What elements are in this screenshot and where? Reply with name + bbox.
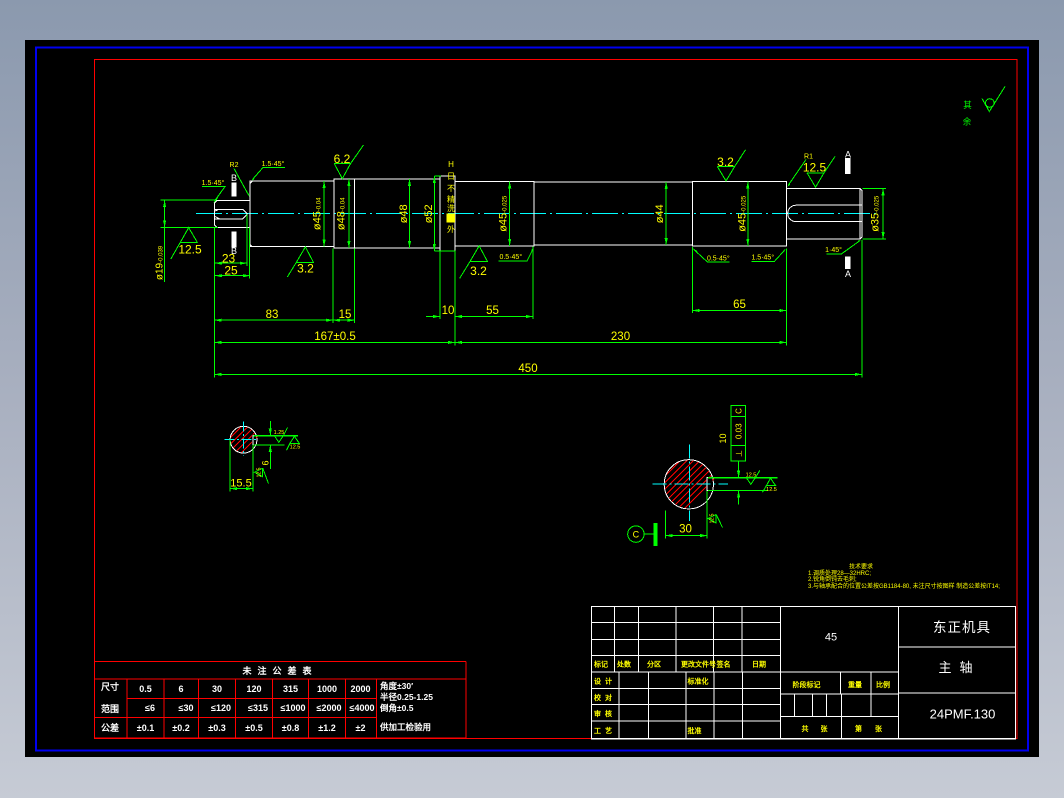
- svg-text:2000: 2000: [350, 684, 370, 694]
- svg-text:批准: 批准: [688, 726, 702, 735]
- svg-text:230: 230: [611, 331, 630, 343]
- svg-text:其: 其: [963, 100, 972, 110]
- svg-text:3.与轴承配合的位置公差按GB1184-80, 未注尺寸按图: 3.与轴承配合的位置公差按GB1184-80, 未注尺寸按图样 制造公差按IT1…: [808, 582, 1000, 590]
- svg-text:A: A: [845, 269, 851, 279]
- svg-text:半径0.25-1.25: 半径0.25-1.25: [380, 692, 433, 702]
- svg-text:≤4000: ≤4000: [350, 703, 375, 713]
- svg-text:0.03: 0.03: [734, 423, 743, 439]
- svg-text:标记: 标记: [593, 660, 608, 669]
- svg-text:2.锐角倒钝去毛刺;: 2.锐角倒钝去毛刺;: [808, 575, 857, 583]
- svg-text:供加工检验用: 供加工检验用: [379, 722, 431, 732]
- svg-text:3.2: 3.2: [470, 264, 487, 278]
- svg-text:65: 65: [733, 299, 746, 311]
- svg-text:1·45°: 1·45°: [825, 246, 842, 254]
- svg-text:≤2000: ≤2000: [317, 703, 342, 713]
- svg-text:1.5·45°: 1.5·45°: [202, 179, 225, 187]
- svg-text:外: 外: [447, 224, 455, 234]
- svg-text:C: C: [633, 530, 640, 540]
- svg-text:处数: 处数: [616, 660, 632, 669]
- svg-text:重量: 重量: [848, 680, 862, 689]
- svg-text:⊥: ⊥: [734, 450, 743, 457]
- svg-text:主轴: 主轴: [938, 660, 980, 675]
- svg-text:120: 120: [246, 684, 261, 694]
- svg-text:12.5: 12.5: [290, 445, 301, 451]
- svg-text:±0.3: ±0.3: [208, 723, 225, 733]
- svg-text:ø48: ø48: [398, 204, 410, 223]
- svg-text:C: C: [734, 408, 743, 414]
- svg-text:东正机具: 东正机具: [933, 620, 991, 635]
- svg-text:技术要求: 技术要求: [849, 563, 873, 571]
- svg-text:6: 6: [261, 460, 271, 465]
- svg-text:24PMF.130: 24PMF.130: [930, 707, 996, 722]
- svg-text:±0.5: ±0.5: [245, 723, 262, 733]
- svg-text:83: 83: [266, 309, 279, 321]
- svg-text:阶段标记: 阶段标记: [793, 680, 821, 689]
- svg-text:工艺: 工艺: [594, 726, 616, 735]
- svg-text:315: 315: [283, 684, 298, 694]
- svg-text:余: 余: [963, 117, 972, 127]
- svg-text:B: B: [231, 173, 237, 183]
- svg-text:未注公差表: 未注公差表: [241, 665, 317, 676]
- svg-text:0.5·45°: 0.5·45°: [499, 253, 522, 261]
- svg-text:3.2: 3.2: [297, 262, 314, 276]
- svg-text:H: H: [448, 160, 454, 169]
- svg-text:张: 张: [875, 724, 883, 733]
- svg-text:±1.2: ±1.2: [318, 723, 335, 733]
- svg-text:15: 15: [339, 309, 352, 321]
- svg-text:45: 45: [825, 632, 837, 644]
- svg-text:30: 30: [212, 684, 222, 694]
- svg-text:12.5: 12.5: [257, 467, 263, 477]
- svg-text:≤120: ≤120: [211, 703, 231, 713]
- svg-text:6: 6: [178, 684, 183, 694]
- svg-text:167±0.5: 167±0.5: [314, 331, 356, 343]
- svg-text:±0.8: ±0.8: [282, 723, 299, 733]
- svg-text:1.5·45°: 1.5·45°: [262, 160, 285, 168]
- svg-text:≤6: ≤6: [145, 703, 155, 713]
- svg-text:≤30: ≤30: [179, 703, 194, 713]
- svg-text:±0.2: ±0.2: [172, 723, 189, 733]
- svg-text:6.2: 6.2: [334, 152, 351, 166]
- svg-text:不: 不: [447, 184, 455, 193]
- svg-text:洗: 洗: [447, 203, 455, 213]
- svg-text:比例: 比例: [876, 680, 890, 689]
- svg-text:R1: R1: [804, 154, 813, 161]
- svg-text:标准化: 标准化: [687, 677, 709, 686]
- svg-text:R2: R2: [230, 162, 239, 169]
- svg-text:10: 10: [442, 305, 455, 317]
- svg-text:3.2: 3.2: [717, 155, 734, 169]
- svg-text:1.25: 1.25: [274, 430, 285, 436]
- svg-text:12.5: 12.5: [178, 243, 202, 257]
- svg-text:ø52: ø52: [423, 204, 435, 223]
- svg-text:角度±30′: 角度±30′: [380, 681, 413, 691]
- svg-text:1000: 1000: [317, 684, 337, 694]
- svg-text:0.5: 0.5: [139, 684, 152, 694]
- svg-text:共: 共: [802, 724, 809, 733]
- svg-text:12.5: 12.5: [710, 513, 716, 523]
- svg-text:0.5·45°: 0.5·45°: [707, 254, 730, 262]
- svg-text:日期: 日期: [752, 660, 766, 669]
- svg-text:校对: 校对: [594, 693, 616, 702]
- svg-text:12.5: 12.5: [746, 472, 757, 478]
- svg-text:10: 10: [718, 433, 728, 443]
- svg-text:12.5: 12.5: [766, 487, 777, 493]
- svg-text:±2: ±2: [356, 723, 366, 733]
- svg-text:1.5·45°: 1.5·45°: [751, 253, 774, 261]
- svg-text:第: 第: [855, 724, 862, 733]
- svg-text:1.调质处理28—32HRC;: 1.调质处理28—32HRC;: [808, 569, 871, 577]
- svg-text:15.5: 15.5: [230, 477, 251, 489]
- svg-text:签名: 签名: [716, 660, 731, 669]
- svg-text:范围: 范围: [101, 703, 119, 714]
- svg-text:450: 450: [518, 363, 537, 375]
- svg-text:尺寸: 尺寸: [101, 681, 119, 692]
- svg-text:日: 日: [447, 172, 455, 181]
- svg-text:审核: 审核: [594, 709, 616, 718]
- svg-text:分区: 分区: [647, 660, 661, 669]
- svg-text:30: 30: [679, 524, 692, 536]
- svg-text:A: A: [845, 150, 851, 160]
- svg-text:55: 55: [486, 305, 499, 317]
- svg-text:±0.1: ±0.1: [137, 723, 154, 733]
- svg-text:张: 张: [821, 724, 829, 733]
- svg-text:更改文件号: 更改文件号: [681, 660, 716, 669]
- svg-text:12.5: 12.5: [803, 160, 827, 174]
- svg-text:25: 25: [224, 264, 238, 278]
- svg-text:≤315: ≤315: [248, 703, 268, 713]
- svg-text:公差: 公差: [101, 722, 119, 733]
- svg-text:设计: 设计: [594, 677, 616, 686]
- svg-text:≤1000: ≤1000: [281, 703, 306, 713]
- svg-text:ø44: ø44: [654, 204, 666, 223]
- svg-text:精: 精: [447, 194, 455, 204]
- svg-text:倒角±0.5: 倒角±0.5: [379, 703, 414, 713]
